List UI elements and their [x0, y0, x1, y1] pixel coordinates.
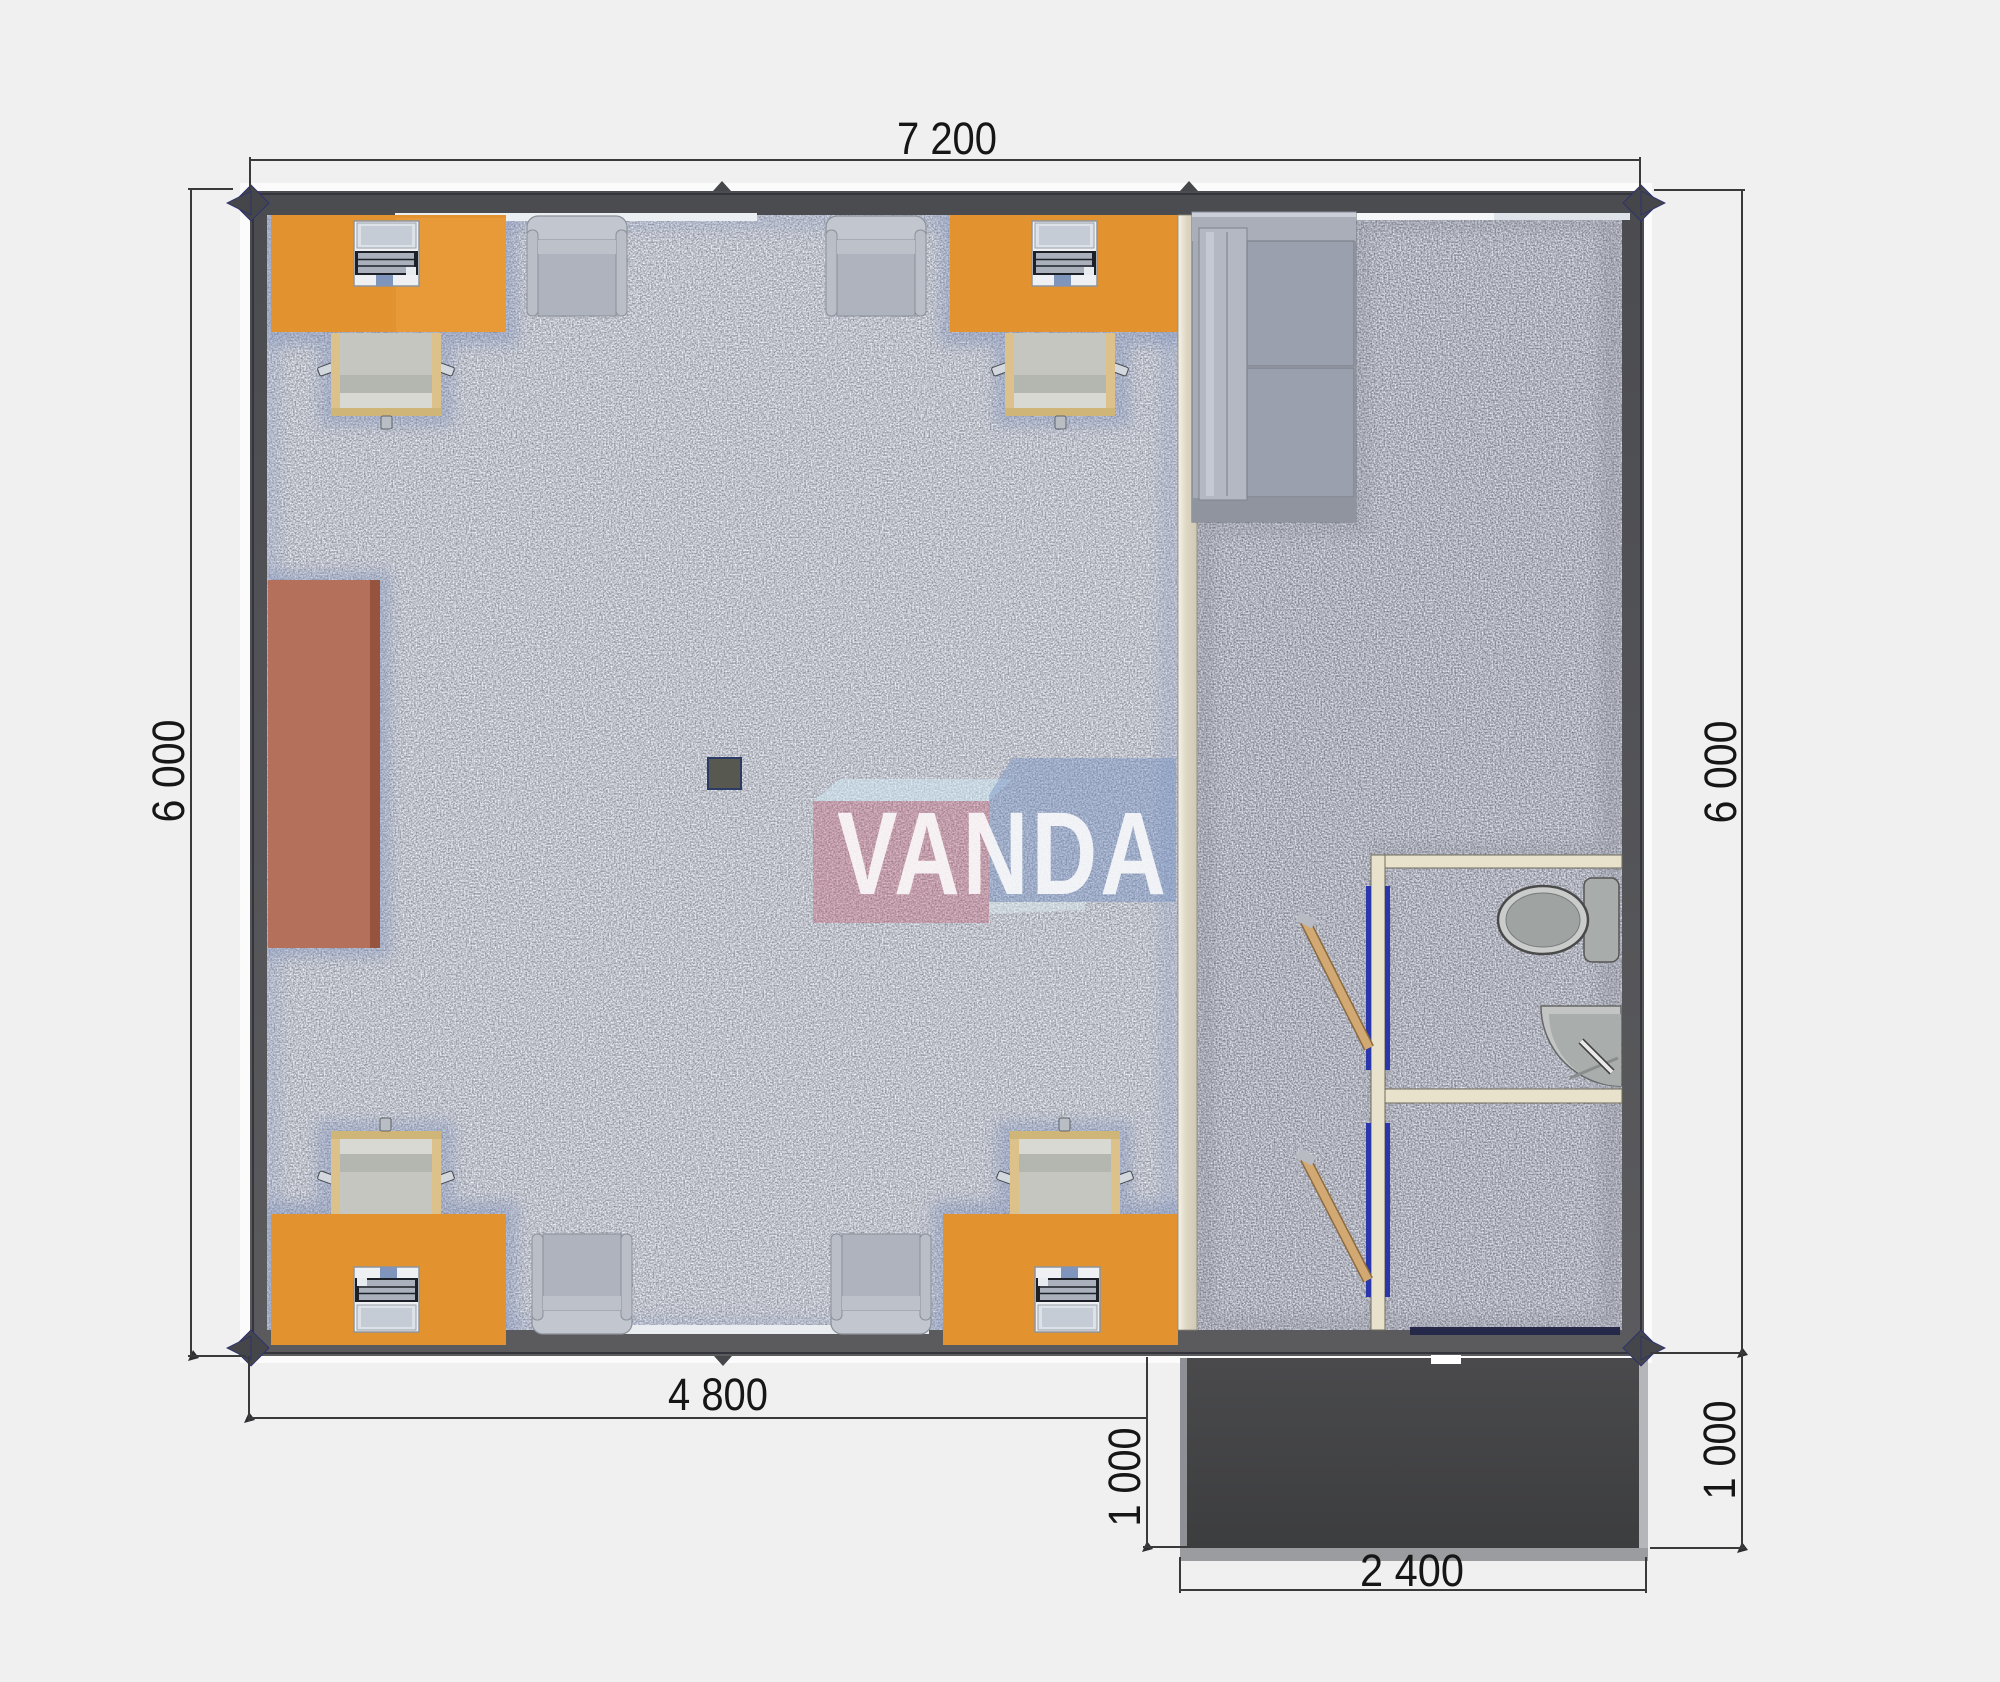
- svg-text:1 000: 1 000: [1694, 1401, 1745, 1500]
- svg-text:2 400: 2 400: [1360, 1545, 1464, 1596]
- svg-text:4 800: 4 800: [668, 1369, 768, 1420]
- svg-text:VANDA: VANDA: [837, 788, 1169, 920]
- svg-text:6 000: 6 000: [1695, 721, 1746, 824]
- svg-text:1 000: 1 000: [1099, 1428, 1150, 1527]
- svg-text:6 000: 6 000: [143, 720, 194, 823]
- svg-text:7 200: 7 200: [897, 113, 997, 164]
